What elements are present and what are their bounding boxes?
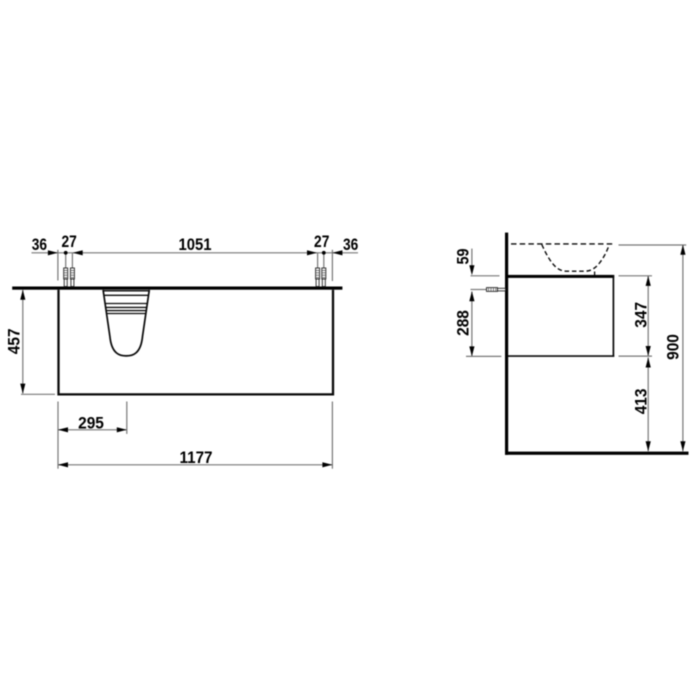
svg-text:27: 27 <box>61 232 76 251</box>
svg-text:27: 27 <box>314 232 329 251</box>
svg-text:457: 457 <box>5 328 24 354</box>
svg-text:36: 36 <box>343 235 358 254</box>
svg-text:1051: 1051 <box>179 235 212 254</box>
svg-text:288: 288 <box>454 310 473 336</box>
svg-text:900: 900 <box>664 334 683 360</box>
svg-text:347: 347 <box>631 302 650 328</box>
svg-text:413: 413 <box>631 389 650 415</box>
svg-text:59: 59 <box>453 249 472 265</box>
svg-text:36: 36 <box>32 235 47 254</box>
svg-text:1177: 1177 <box>180 448 213 467</box>
svg-text:295: 295 <box>78 413 104 432</box>
